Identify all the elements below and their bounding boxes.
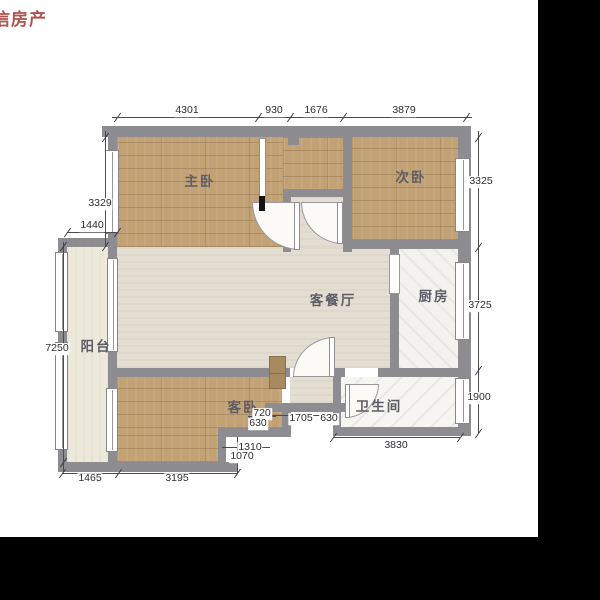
- dim-bottom-2: 3195: [164, 473, 189, 485]
- dim-left-total: 7250: [44, 343, 69, 355]
- kitchen-label: 厨房: [419, 285, 450, 305]
- dim-top-2: 930: [264, 105, 284, 117]
- balcony-window-upper: [55, 252, 68, 332]
- wall-top-nub: [288, 137, 299, 145]
- dim-top-3: 1676: [303, 105, 328, 117]
- dim-line-left-outer: [63, 242, 64, 472]
- kitchen-door: [389, 254, 400, 294]
- closet-sliding-door: [259, 138, 266, 198]
- wall-vestibule-bottom: [265, 403, 352, 412]
- wall-second-bedroom-bottom: [343, 240, 471, 249]
- balcony-label: 阳台: [81, 335, 112, 355]
- guest-bedroom-floor-lower: [117, 428, 218, 462]
- closet-door-stop: [259, 196, 265, 211]
- dim-bath-width: 3830: [383, 440, 408, 452]
- wall-top: [102, 126, 471, 137]
- living-dining-label: 客餐厅: [310, 289, 357, 309]
- master-bedroom-window: [105, 150, 119, 234]
- second-bedroom-label: 次卧: [396, 166, 427, 186]
- dim-vestibule-b: 630: [319, 413, 339, 425]
- crop-bar-right: [538, 0, 600, 600]
- dim-left-balcony: 1440: [79, 220, 104, 232]
- dim-top-1: 4301: [174, 105, 199, 117]
- dim-notch-b: 1070: [229, 451, 254, 463]
- floor-plan-image: 信房产 主卧 次卧 客餐厅: [0, 0, 600, 600]
- dim-bottom-1: 1465: [77, 473, 102, 485]
- dim-line-top: [112, 117, 472, 118]
- wall-bath-bottom: [333, 427, 471, 436]
- entry-door-leaf: [329, 337, 335, 377]
- second-bedroom-floor: [352, 137, 458, 240]
- wall-living-bottom: [108, 368, 290, 377]
- bathroom-label: 卫生间: [356, 395, 403, 415]
- second-bedroom-window: [455, 158, 470, 232]
- crop-bar-bottom: [0, 537, 600, 600]
- dim-left-master: 3329: [87, 198, 112, 210]
- agency-watermark: 信房产: [0, 5, 47, 30]
- dim-line-bath-width: [333, 437, 460, 438]
- master-door-leaf: [294, 202, 300, 250]
- dim-line-left-inner: [105, 131, 106, 247]
- dim-entry-b: 630: [248, 418, 268, 430]
- wall-bottom: [58, 462, 237, 472]
- dim-right-2: 3725: [467, 300, 492, 312]
- dim-right-1: 3325: [468, 176, 493, 188]
- balcony-window-lower: [55, 342, 68, 450]
- kitchen-floor: [399, 249, 458, 368]
- bathroom-door-leaf: [345, 384, 350, 418]
- wall-bath-top-b: [378, 368, 471, 377]
- wall-closet-lintel: [283, 189, 352, 197]
- wall-bath-left: [333, 368, 341, 436]
- entry-cabinet: [269, 356, 286, 389]
- entry-vestibule-floor: [290, 377, 335, 403]
- guest-bedroom-window: [106, 388, 118, 452]
- master-bedroom-label: 主卧: [185, 170, 216, 190]
- dim-right-3: 1900: [466, 392, 491, 404]
- dim-top-4: 3879: [391, 105, 416, 117]
- second-door-leaf: [337, 202, 343, 244]
- dim-line-balcony-width: [67, 232, 117, 233]
- wall-second-bedroom-left: [343, 126, 352, 252]
- dim-vestibule: 1705: [288, 413, 313, 425]
